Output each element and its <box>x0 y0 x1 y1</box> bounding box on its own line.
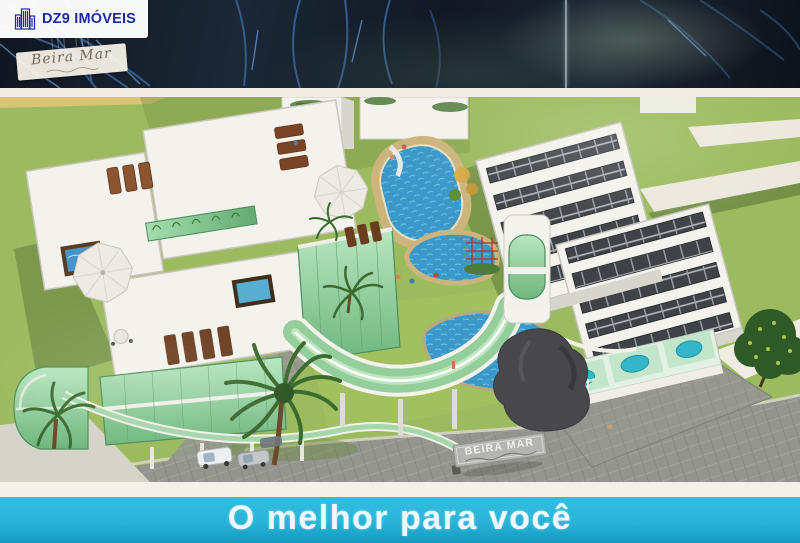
slogan-text: O melhor para você <box>228 499 572 538</box>
slogan-band: O melhor para você <box>0 497 800 543</box>
brochure-photo: BEIRA MAR O melhor para você <box>0 0 800 543</box>
dz9-watermark: DZ9 IMÓVEIS <box>0 0 148 38</box>
hedge <box>464 263 500 275</box>
aerial-rendering: BEIRA MAR <box>0 97 800 482</box>
link-tower <box>504 215 550 323</box>
white-divider-bottom <box>0 482 800 497</box>
white-divider-top <box>0 88 800 97</box>
kids-pool <box>407 232 498 283</box>
dz9-buildings-icon <box>14 6 36 32</box>
dz9-brand-label: DZ9 IMÓVEIS <box>42 11 136 27</box>
fold-line <box>565 0 567 88</box>
